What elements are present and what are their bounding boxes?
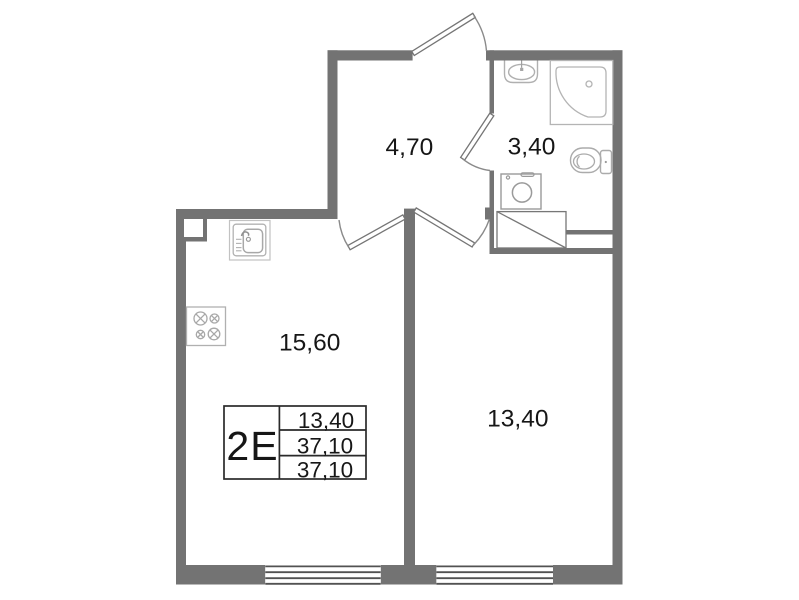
svg-text:15,60: 15,60 xyxy=(279,330,340,357)
svg-text:37,10: 37,10 xyxy=(297,434,353,459)
svg-text:2Е: 2Е xyxy=(226,423,278,469)
svg-text:37,10: 37,10 xyxy=(297,458,353,483)
svg-text:13,40: 13,40 xyxy=(487,406,548,433)
svg-text:3,40: 3,40 xyxy=(508,134,556,161)
svg-text:4,70: 4,70 xyxy=(386,134,434,161)
svg-text:13,40: 13,40 xyxy=(298,408,354,433)
